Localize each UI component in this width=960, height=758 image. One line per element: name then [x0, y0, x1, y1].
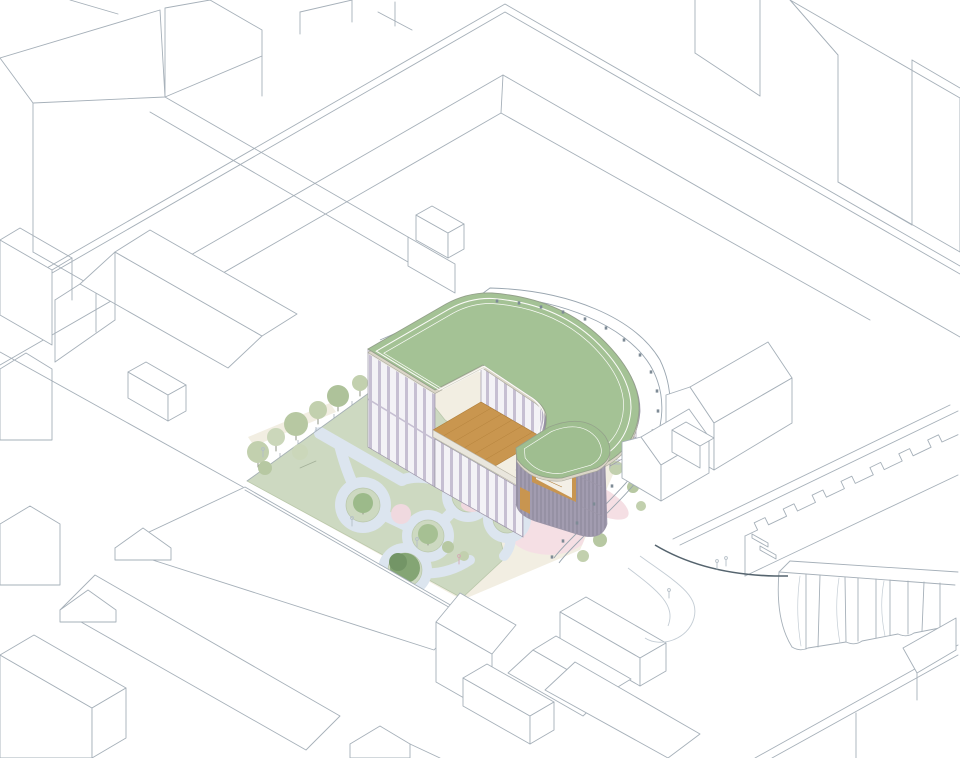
axonometric-drawing-page: [0, 0, 960, 758]
site-axonometric-drawing: [0, 0, 960, 758]
pink-play-circle: [391, 504, 411, 524]
context-top-right-slab: [695, 0, 960, 252]
dark-road-curve: [655, 545, 788, 576]
street-figures: [668, 557, 728, 598]
context-sawtooth-building: [745, 435, 958, 576]
context-right-houses: [622, 342, 792, 501]
roads: [628, 545, 788, 642]
